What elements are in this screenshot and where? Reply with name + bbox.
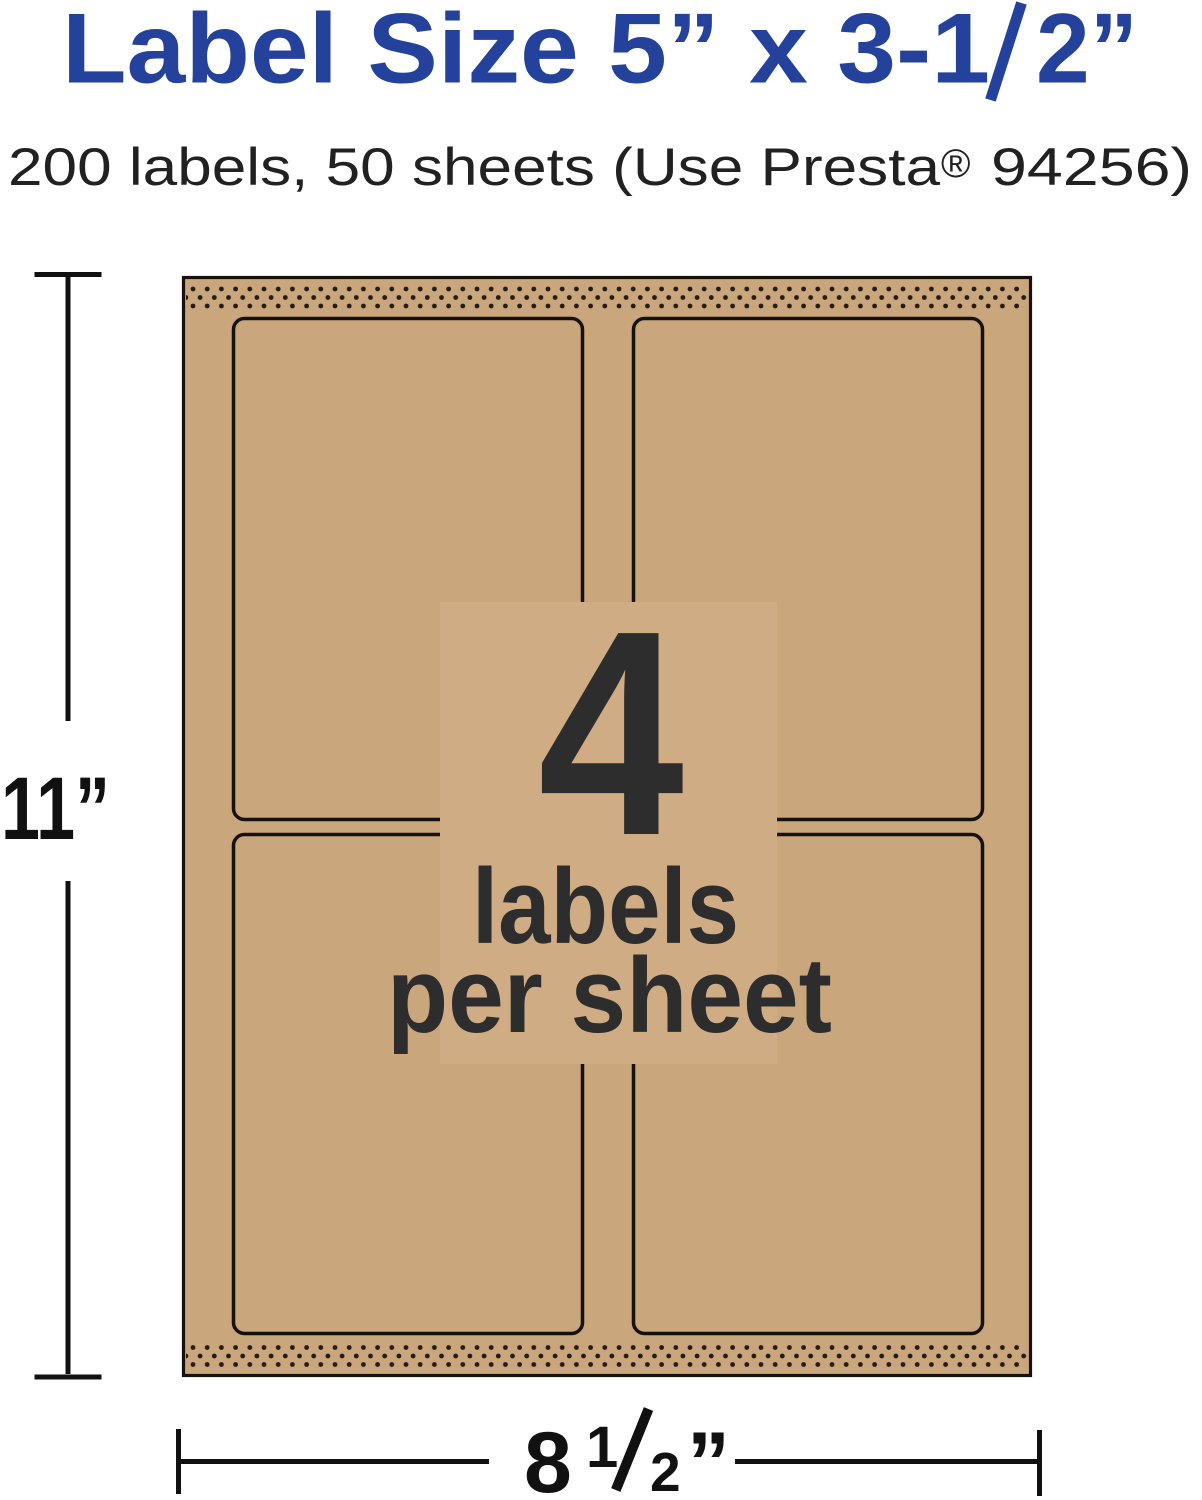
svg-text:2”: 2” [1036, 0, 1138, 104]
svg-text:1: 1 [586, 1415, 618, 1480]
svg-text:11”: 11” [1, 758, 110, 858]
svg-text:94256): 94256) [991, 138, 1192, 197]
svg-text:Label Size 5” x 3-1: Label Size 5” x 3-1 [62, 0, 990, 104]
svg-text:”: ” [687, 1415, 730, 1500]
svg-text:®: ® [941, 142, 970, 186]
svg-text:8: 8 [524, 1415, 572, 1500]
svg-text:200 labels, 50 sheets (Use Pre: 200 labels, 50 sheets (Use Presta [8, 138, 941, 197]
svg-text:2: 2 [650, 1441, 681, 1500]
svg-text:per sheet: per sheet [387, 935, 832, 1055]
